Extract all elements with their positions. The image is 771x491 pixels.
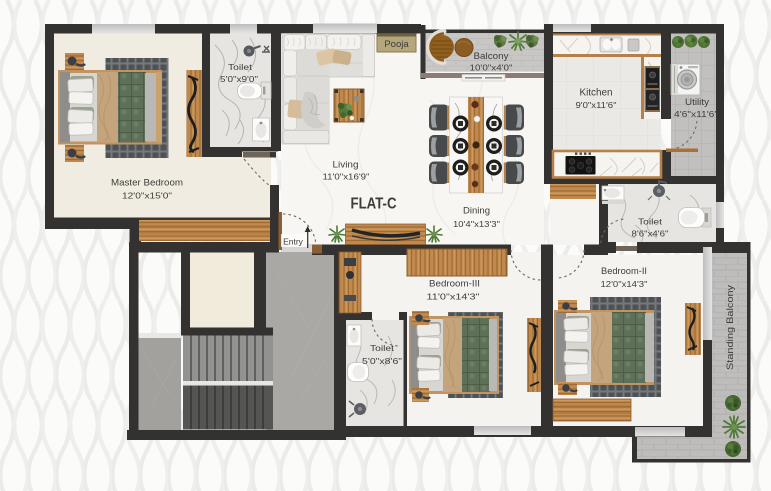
svg-text:5'0"x9'0": 5'0"x9'0" — [220, 75, 258, 84]
svg-text:FLAT-C: FLAT-C — [351, 196, 397, 213]
svg-text:Pooja: Pooja — [384, 39, 409, 50]
svg-text:Dining: Dining — [463, 206, 490, 217]
svg-text:4'6"x11'6": 4'6"x11'6" — [674, 109, 718, 119]
svg-text:Toilet: Toilet — [370, 343, 395, 353]
svg-text:Master Bedroom: Master Bedroom — [111, 178, 183, 189]
svg-text:9'0"x11'6": 9'0"x11'6" — [576, 100, 617, 110]
svg-text:Bedroom-II: Bedroom-II — [601, 266, 647, 277]
svg-text:Toilet: Toilet — [228, 62, 253, 72]
svg-text:Balcony: Balcony — [474, 51, 510, 61]
svg-text:Kitchen: Kitchen — [580, 88, 613, 99]
svg-text:12'0"x14'3": 12'0"x14'3" — [601, 279, 648, 289]
svg-text:10'0"x4'0": 10'0"x4'0" — [470, 63, 513, 73]
svg-text:Bedroom-III: Bedroom-III — [429, 279, 480, 290]
svg-text:11'0"x16'9": 11'0"x16'9" — [323, 172, 370, 182]
svg-text:Living: Living — [333, 160, 359, 171]
svg-text:10'4"x13'3": 10'4"x13'3" — [453, 219, 500, 229]
svg-text:Utility: Utility — [685, 97, 710, 107]
svg-text:5'0"x8'6": 5'0"x8'6" — [362, 357, 402, 366]
svg-text:Standing Balcony: Standing Balcony — [725, 284, 735, 370]
svg-text:8'6"x4'6": 8'6"x4'6" — [632, 229, 669, 239]
svg-text:11'0"x14'3": 11'0"x14'3" — [427, 292, 480, 302]
svg-text:Entry: Entry — [283, 237, 304, 247]
svg-text:Toilet: Toilet — [638, 217, 663, 227]
svg-text:12'0"x15'0": 12'0"x15'0" — [122, 191, 172, 201]
